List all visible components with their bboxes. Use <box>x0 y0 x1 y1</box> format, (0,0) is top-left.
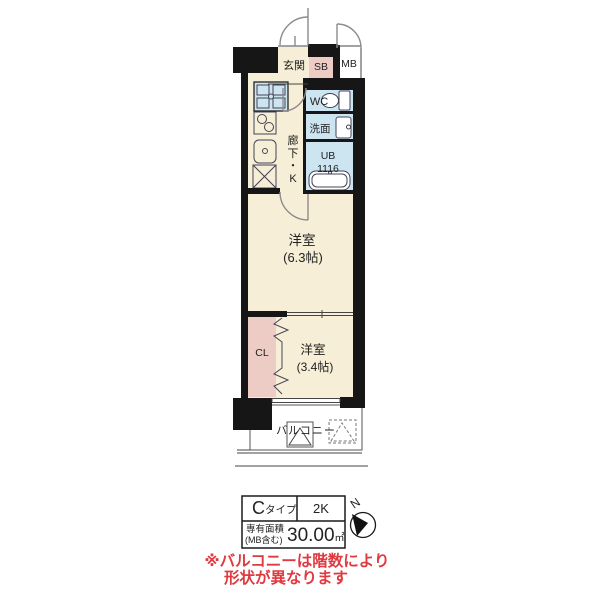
sb-label: SB <box>314 61 328 73</box>
area-label-line1: 専有面積 <box>246 523 285 535</box>
north-compass-icon: N <box>348 495 376 537</box>
balcony-note-line1: ※バルコニーは階数により <box>205 551 390 570</box>
svg-text:・: ・ <box>288 160 299 172</box>
closet-label: CL <box>255 347 269 359</box>
area-value-cell: 30.00㎡ <box>287 525 345 546</box>
layout-cell: 2K <box>313 501 329 516</box>
north-label: N <box>348 495 363 511</box>
ub-label: UB <box>321 150 336 162</box>
balcony-note-line2: 形状が異なります <box>224 568 348 587</box>
info-table: Cタイプ 2K 専有面積 (MB含む) 30.00㎡ <box>242 496 345 548</box>
svg-text:廊: 廊 <box>288 133 299 147</box>
floor-plan-svg: 玄関 SB MB WC 洗面 UB 1116 廊 下 ・ K 洋室 (6.3帖)… <box>0 0 600 600</box>
wc-label: WC <box>310 96 328 108</box>
washbasin-icon <box>336 117 351 138</box>
senmen-label: 洗面 <box>310 123 331 135</box>
genkan-label: 玄関 <box>283 58 305 72</box>
mb-label: MB <box>341 58 357 70</box>
balcony-label: バルコニー <box>276 424 336 437</box>
room2-name-label: 洋室 <box>300 342 325 357</box>
ub-size-label: 1116 <box>317 163 339 175</box>
floor-plan-page: 玄関 SB MB WC 洗面 UB 1116 廊 下 ・ K 洋室 (6.3帖)… <box>0 0 600 600</box>
room2-size-label: (3.4帖) <box>297 359 334 374</box>
room1-size-label: (6.3帖) <box>283 250 323 265</box>
room1-name-label: 洋室 <box>289 232 316 248</box>
svg-text:下: 下 <box>288 148 299 160</box>
type-cell: Cタイプ <box>252 498 297 518</box>
area-label-line2: (MB含む) <box>245 534 283 545</box>
svg-text:K: K <box>289 173 297 185</box>
